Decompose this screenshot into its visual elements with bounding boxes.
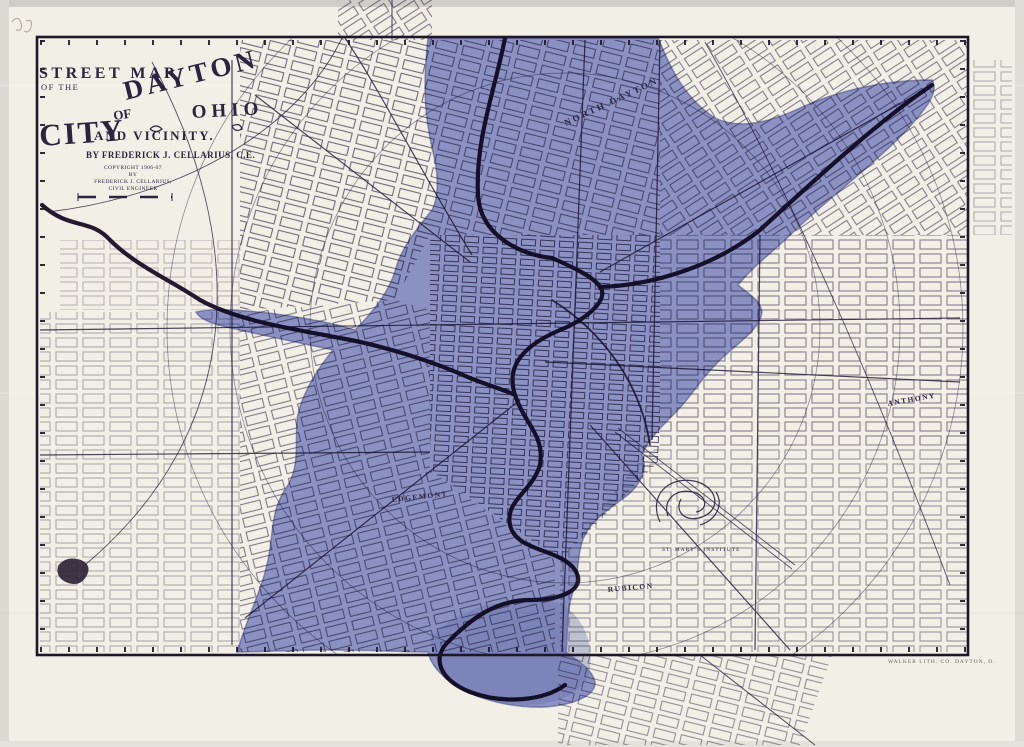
title-vicinity: AND VICINITY. [94, 128, 215, 143]
copyright-line-1: COPYRIGHT 1906-07 [104, 165, 162, 171]
copyright-line-4: CIVIL ENGINEER [109, 186, 158, 192]
title-state: OHIO [191, 98, 264, 123]
title-of: OF [112, 106, 132, 123]
scanned-map-page: STREET MAP OF THE CITY OF DAYTON OHIO AN… [0, 0, 1024, 747]
printer-credit: WALKER LITH. CO. DAYTON, O. [888, 659, 996, 665]
map-subheader: OF THE [41, 82, 79, 92]
copyright-line-2: BY [129, 172, 137, 178]
dayton-street-map: STREET MAP OF THE CITY OF DAYTON OHIO AN… [0, 0, 1024, 747]
copyright-line-3: FREDERICK J. CELLARIUS, [94, 179, 172, 185]
label-st-marys-institute: ST. MARY'S INSTITUTE [662, 547, 741, 553]
byline: BY FREDERICK J. CELLARIUS, C.E. [86, 150, 255, 160]
